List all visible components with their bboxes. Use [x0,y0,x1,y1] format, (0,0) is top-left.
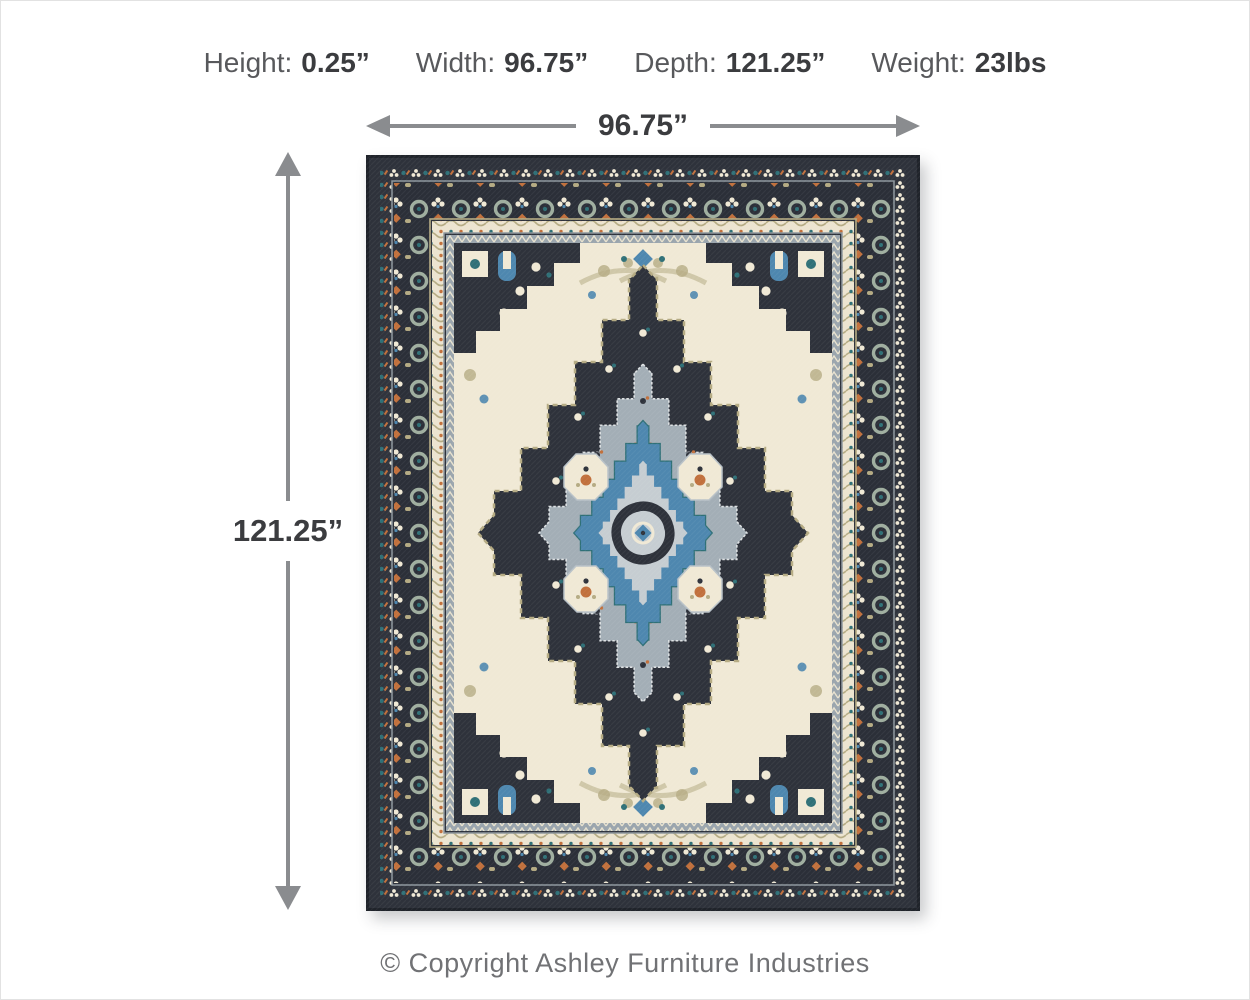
arrow-line [286,561,290,886]
spec-value: 23lbs [975,47,1047,78]
copyright-text: © Copyright Ashley Furniture Industries [0,948,1250,979]
arrowhead-down-icon [275,886,301,910]
spec-value: 121.25” [726,47,826,78]
spec-item-depth: Depth:121.25” [634,44,825,82]
spec-value: 96.75” [504,47,588,78]
spec-label: Depth: [634,47,717,78]
spec-item-width: Width:96.75” [416,44,588,82]
height-dimension-label: 121.25” [233,501,343,561]
rug-illustration [366,155,920,911]
spec-item-height: Height:0.25” [204,44,370,82]
arrowhead-up-icon [275,152,301,176]
arrowhead-right-icon [896,115,920,137]
spec-label: Width: [416,47,495,78]
arrow-line [390,124,576,128]
arrow-line [286,176,290,501]
rug-product-image [366,155,920,911]
spec-item-weight: Weight:23lbs [871,44,1046,82]
width-dimension-label: 96.75” [576,109,710,143]
arrowhead-left-icon [366,115,390,137]
arrow-line [710,124,896,128]
spec-header: Height:0.25” Width:96.75” Depth:121.25” … [0,44,1250,82]
product-dimension-page: Height:0.25” Width:96.75” Depth:121.25” … [0,0,1250,1000]
height-dimension-arrow: 121.25” [222,152,354,910]
spec-label: Weight: [871,47,965,78]
rug-texture-overlay [366,155,920,911]
width-dimension-arrow: 96.75” [366,109,920,143]
spec-value: 0.25” [301,47,370,78]
spec-label: Height: [204,47,293,78]
